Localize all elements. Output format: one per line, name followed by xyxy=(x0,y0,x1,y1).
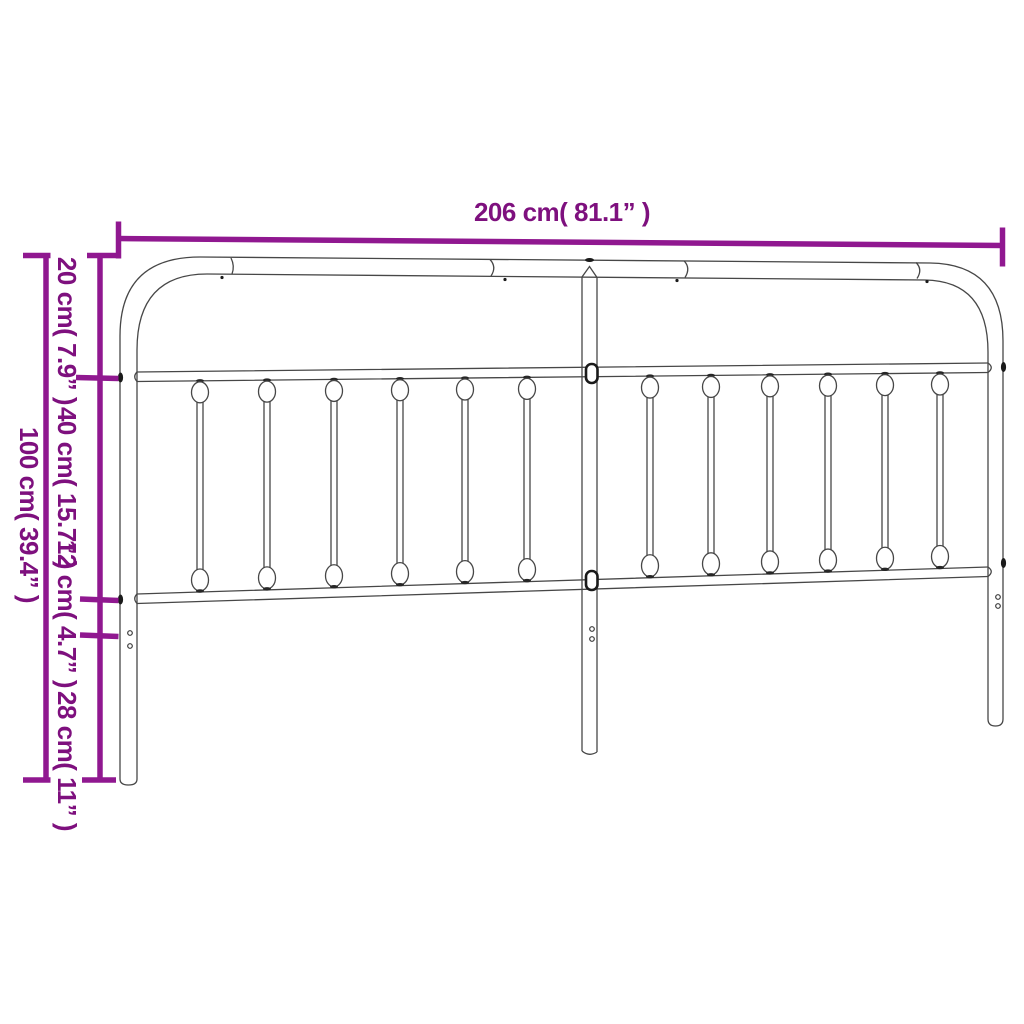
baluster-top-egg xyxy=(326,380,343,401)
right-leg-foot xyxy=(988,719,1003,726)
headboard-balusters xyxy=(192,371,949,592)
baluster-top-egg xyxy=(932,374,949,395)
baluster-top-egg xyxy=(457,379,474,400)
bolt xyxy=(118,595,123,605)
headboard-drawing xyxy=(0,0,1024,1024)
screw-hole xyxy=(128,644,133,649)
screw-hole xyxy=(128,631,133,636)
joint-dot xyxy=(925,280,928,283)
baluster-joint-dot xyxy=(330,585,338,588)
bolt xyxy=(1001,362,1006,372)
baluster-bottom-egg xyxy=(762,551,779,573)
dimension-lines xyxy=(23,222,1003,781)
post-top-cap xyxy=(585,258,594,262)
top-rail-joint xyxy=(231,258,233,274)
width-dimension-label: 206 cm( 81.1” ) xyxy=(474,199,650,225)
screw-hole xyxy=(996,595,1001,600)
segment-tick-12-28 xyxy=(80,635,119,637)
baluster-bottom-egg xyxy=(192,569,209,591)
baluster-bottom-egg xyxy=(877,547,894,569)
segment-label-28cm: 28 cm( 11” ) xyxy=(54,691,80,831)
baluster-top-egg xyxy=(762,376,779,397)
baluster-top-egg xyxy=(192,382,209,403)
top-rail-joint xyxy=(916,263,920,279)
segment-tick-20-40 xyxy=(76,378,119,379)
baluster-joint-dot xyxy=(461,581,469,584)
top-rail-joint xyxy=(684,261,688,278)
baluster-joint-dot xyxy=(523,579,531,582)
left-leg-foot xyxy=(120,779,137,785)
joint-dot xyxy=(220,276,223,279)
baluster-joint-dot xyxy=(881,568,889,571)
baluster-bottom-egg xyxy=(642,555,659,577)
segment-tick-40-12 xyxy=(80,599,119,601)
baluster-top-egg xyxy=(703,376,720,397)
lower-bracket xyxy=(586,571,598,590)
baluster-top-egg xyxy=(519,378,536,399)
segment-label-20cm: 20 cm( 7.9” ) xyxy=(54,257,80,405)
headboard-frame xyxy=(120,257,1003,785)
baluster-bottom-egg xyxy=(326,565,343,587)
bolt xyxy=(1001,558,1006,568)
frame-outer-line xyxy=(120,257,1003,779)
bolt xyxy=(118,373,123,383)
top-rail-joint xyxy=(490,260,494,277)
baluster-joint-dot xyxy=(766,571,774,574)
baluster-joint-dot xyxy=(707,573,715,576)
upper-rail xyxy=(137,363,988,382)
baluster-top-egg xyxy=(877,375,894,396)
baluster-top-egg xyxy=(392,380,409,401)
baluster-bottom-egg xyxy=(820,549,837,571)
baluster-bottom-egg xyxy=(932,546,949,568)
segment-label-12cm: 12 cm( 4.7” ) xyxy=(54,540,80,688)
joint-dot xyxy=(503,278,506,281)
baluster-joint-dot xyxy=(263,587,271,590)
baluster-bottom-egg xyxy=(519,559,536,581)
baluster-bottom-egg xyxy=(457,561,474,583)
baluster-top-egg xyxy=(820,375,837,396)
baluster-joint-dot xyxy=(936,566,944,569)
screw-hole xyxy=(996,604,1001,609)
screw-hole xyxy=(590,637,595,642)
baluster-bottom-egg xyxy=(259,567,276,589)
baluster-joint-dot xyxy=(196,589,204,592)
baluster-top-egg xyxy=(259,381,276,402)
baluster-top-egg xyxy=(642,377,659,398)
baluster-joint-dot xyxy=(396,583,404,586)
screw-hole xyxy=(590,627,595,632)
center-post-foot xyxy=(582,751,597,754)
center-post xyxy=(582,267,597,753)
diagram-canvas: 206 cm( 81.1” ) 100 cm( 39.4” ) 20 cm( 7… xyxy=(0,0,1024,1024)
upper-bracket xyxy=(586,364,598,383)
baluster-joint-dot xyxy=(646,575,654,578)
width-dimension-line xyxy=(118,239,1003,246)
baluster-joint-dot xyxy=(824,569,832,572)
baluster-bottom-egg xyxy=(392,563,409,585)
joint-dot xyxy=(675,279,678,282)
baluster-bottom-egg xyxy=(703,553,720,575)
total-height-dimension-label: 100 cm( 39.4” ) xyxy=(16,427,42,603)
